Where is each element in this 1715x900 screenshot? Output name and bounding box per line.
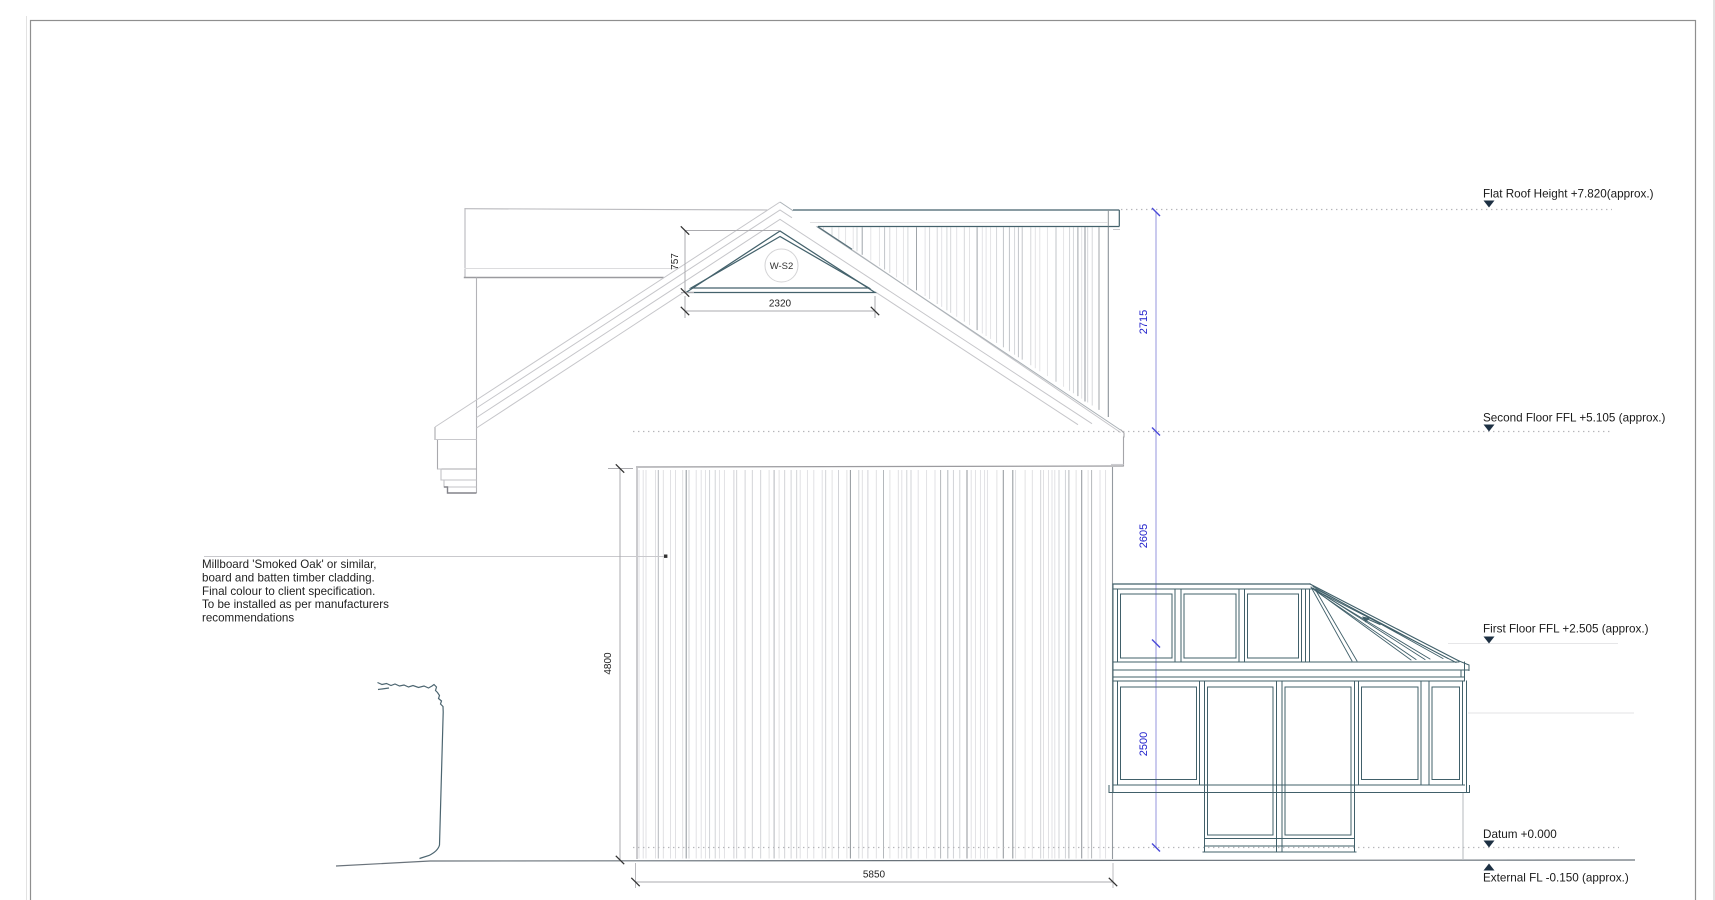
svg-text:2715: 2715 [1138, 310, 1150, 334]
svg-text:Datum +0.000: Datum +0.000 [1483, 828, 1557, 841]
svg-text:2500: 2500 [1138, 732, 1150, 756]
svg-text:Flat Roof Height +7.820(approx: Flat Roof Height +7.820(approx.) [1483, 188, 1654, 201]
svg-text:To be installed as per manufac: To be installed as per manufacturers [202, 598, 389, 611]
svg-text:Second Floor FFL +5.105 (appro: Second Floor FFL +5.105 (approx.) [1483, 412, 1666, 425]
svg-text:First Floor FFL +2.505 (approx: First Floor FFL +2.505 (approx.) [1483, 623, 1649, 636]
svg-text:757: 757 [670, 253, 681, 270]
svg-text:W-S2: W-S2 [770, 261, 794, 272]
svg-text:5850: 5850 [863, 870, 886, 881]
svg-text:External FL -0.150 (approx.): External FL -0.150 (approx.) [1483, 872, 1629, 885]
svg-text:board and batten timber claddi: board and batten timber cladding. [202, 571, 375, 584]
svg-text:2605: 2605 [1138, 524, 1150, 548]
svg-text:Final colour to client specifi: Final colour to client specification. [202, 585, 375, 598]
svg-text:2320: 2320 [769, 299, 792, 310]
svg-text:recommendations: recommendations [202, 612, 294, 625]
svg-text:4800: 4800 [603, 652, 614, 675]
svg-text:Millboard 'Smoked Oak' or simi: Millboard 'Smoked Oak' or similar, [202, 558, 377, 571]
